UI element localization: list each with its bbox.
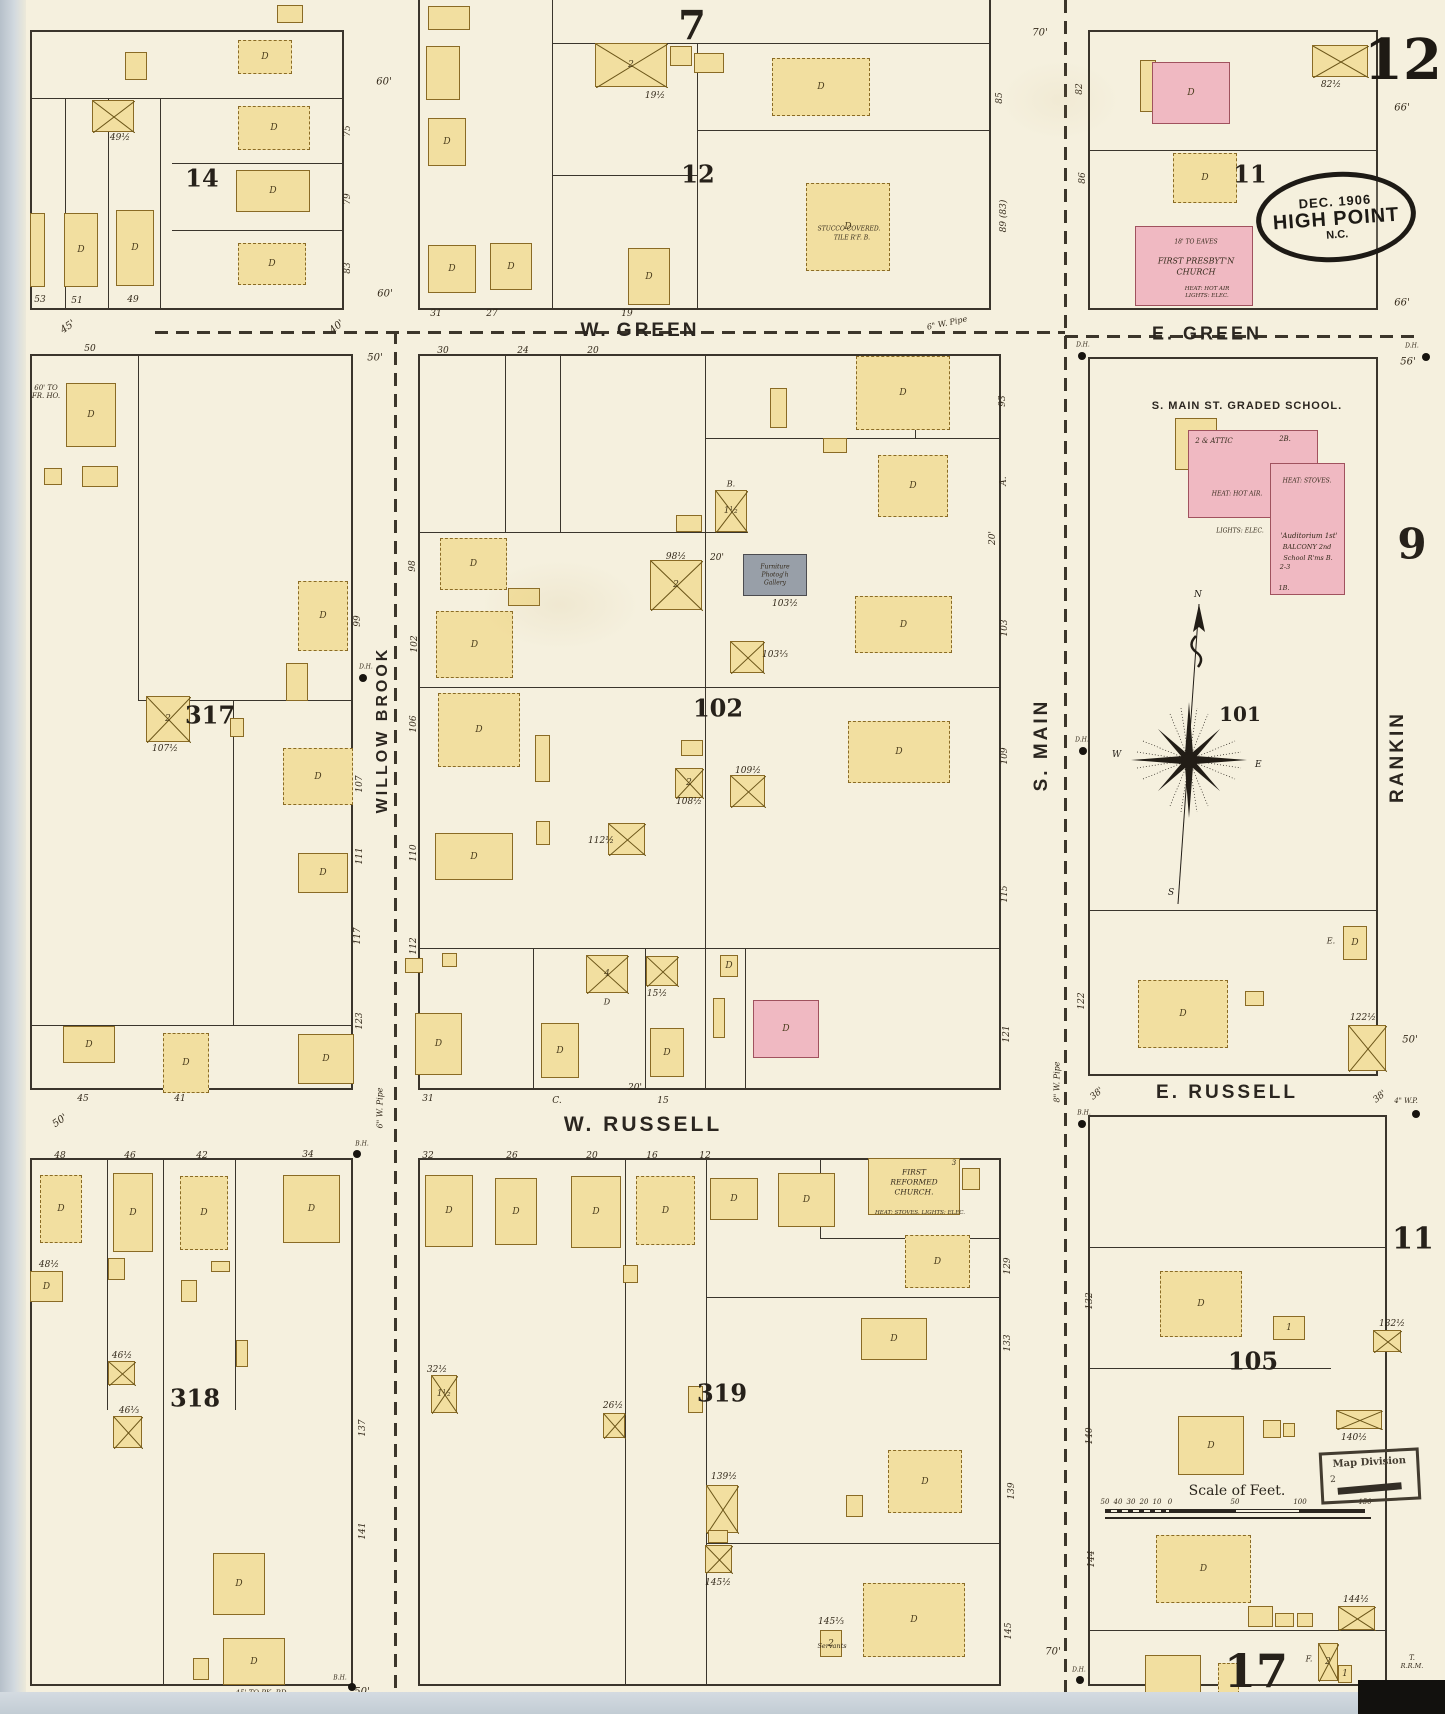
crossed-building-x (109, 1362, 136, 1386)
map-annotation: 20 (587, 346, 598, 356)
map-annotation: 56' (1400, 357, 1415, 368)
map-annotation: S. MAIN ST. GRADED SCHOOL. (1152, 400, 1342, 412)
building (125, 52, 147, 80)
building-label: 2 (1319, 1644, 1337, 1680)
building: D (298, 581, 348, 651)
scale-tick: 100 (1293, 1498, 1306, 1506)
building (730, 775, 765, 807)
building: 2 (146, 696, 190, 742)
building: D (113, 1173, 153, 1252)
map-annotation: 98 (408, 560, 418, 571)
building (1263, 1420, 1281, 1438)
building-label: D (436, 834, 512, 879)
lot-line (160, 98, 161, 309)
lot-line (1088, 357, 1378, 359)
street-label: S. MAIN (1031, 699, 1053, 792)
lot-line (552, 175, 697, 176)
map-annotation: 141 (358, 1522, 368, 1539)
map-annotation: HEAT: HOT AIR. (1212, 491, 1263, 498)
map-annotation: 3 (952, 1159, 956, 1167)
map-annotation: 115 (1000, 885, 1010, 902)
lot-line (233, 700, 234, 1026)
map-annotation: 46½ (112, 1351, 132, 1361)
map-annotation: 117 (353, 927, 363, 944)
map-division-stamp: Map Division 2 (1319, 1447, 1422, 1504)
map-annotation: 45' (59, 318, 78, 336)
map-annotation: 48 (54, 1151, 65, 1161)
building: D (905, 1235, 970, 1288)
map-annotation: 45 (77, 1094, 88, 1104)
lot-line (30, 308, 344, 310)
block-number: 9 (1397, 520, 1426, 569)
lot-line (418, 948, 1000, 949)
block-number: 319 (697, 1379, 747, 1408)
building-label: 1½ (716, 491, 746, 531)
building: D (1156, 1535, 1251, 1603)
map-annotation: 'Auditorium 1st' (1281, 532, 1338, 540)
building: D (116, 210, 154, 286)
scan-edge-left (0, 0, 26, 1714)
building-label: 1½ (432, 1376, 456, 1412)
map-annotation: 66' (1394, 298, 1409, 309)
lot-line (1088, 357, 1090, 1076)
building (713, 998, 725, 1038)
map-annotation: CHURCH. (895, 1188, 934, 1197)
map-annotation: 19 (621, 309, 632, 319)
crossed-building-x (609, 824, 646, 856)
building: D (1178, 1416, 1244, 1475)
map-annotation: 145½ (705, 1578, 731, 1588)
lot-line (999, 354, 1001, 1090)
street-label: E. GREEN (1152, 324, 1262, 345)
map-annotation: HEAT: HOT AIR (1185, 286, 1230, 292)
building (536, 821, 550, 845)
building: D (66, 383, 116, 447)
building-label: D (651, 1029, 683, 1076)
map-annotation: 89 (83) (999, 200, 1009, 233)
building-label: 4 (587, 956, 627, 992)
map-annotation: 8" W. Pipe (1053, 1061, 1062, 1102)
building: 2 (675, 768, 703, 798)
map-annotation: 41 (174, 1094, 185, 1104)
map-annotation: D.H. (1405, 343, 1419, 350)
street-label: E. RUSSELL (1156, 1082, 1298, 1104)
compass-north-label: N (1194, 590, 1202, 600)
lot-line (552, 0, 553, 309)
lot-line (1088, 1115, 1387, 1117)
building-label: D (849, 722, 949, 782)
map-annotation: 110 (409, 844, 419, 861)
map-annotation: 50' (1402, 1035, 1417, 1046)
building: D (753, 1000, 819, 1058)
map-annotation: 103 (1000, 619, 1010, 636)
map-annotation: 139 (1007, 1482, 1017, 1499)
building (770, 388, 787, 428)
building: D (440, 538, 507, 590)
map-annotation: STUCCO COVERED. (818, 226, 881, 233)
building-label: D (237, 171, 309, 211)
map-annotation: 85 (995, 92, 1005, 103)
building-label: D (439, 694, 519, 766)
compass-rose: N W E S (1102, 588, 1277, 918)
building: 1½ (431, 1375, 457, 1413)
map-annotation: 4" W.P. (1394, 1097, 1418, 1105)
map-annotation: 129 (1003, 1257, 1013, 1274)
map-annotation: TILE R'F. B. (834, 235, 870, 242)
map-annotation: D (604, 998, 610, 1007)
lot-line (163, 1158, 164, 1685)
street-dashed-line (394, 331, 397, 1694)
building-label: D (542, 1024, 578, 1077)
building-label: D (164, 1034, 208, 1092)
building (405, 958, 423, 973)
building-label: D (906, 1236, 969, 1287)
building (426, 46, 460, 100)
building-label: 1 (1274, 1317, 1304, 1339)
map-annotation: F. (1306, 1655, 1313, 1664)
building: D (541, 1023, 579, 1078)
building: D (425, 1175, 473, 1247)
map-annotation: 50 (84, 344, 95, 354)
building (535, 735, 550, 782)
block-number: 102 (693, 694, 743, 723)
lot-line (30, 354, 353, 356)
building: D (428, 245, 476, 293)
map-annotation: REFORMED (890, 1178, 937, 1187)
crossed-building-x (1337, 1411, 1383, 1430)
map-annotation: 102 (410, 635, 420, 652)
map-annotation: 27 (486, 309, 497, 319)
map-annotation: 26½ (603, 1401, 623, 1411)
building: D (213, 1553, 265, 1615)
lot-line (706, 1297, 1000, 1298)
compass-east-label: E (1255, 760, 1262, 770)
building (1336, 1410, 1382, 1429)
building: D (30, 1271, 63, 1302)
lot-line (351, 1158, 353, 1686)
building (193, 1658, 209, 1680)
map-annotation: 99 (353, 615, 363, 626)
lot-line (1088, 150, 1376, 151)
map-annotation: B.H. (333, 1675, 346, 1682)
map-annotation: 79 (343, 193, 353, 204)
building (1338, 1606, 1375, 1630)
map-annotation: A. (999, 476, 1009, 485)
street-label: W. GREEN (580, 320, 699, 342)
map-annotation: 6" W. Pipe (376, 1087, 385, 1128)
map-annotation: Gallery (764, 580, 786, 587)
building-label: D (1139, 981, 1227, 1047)
crossed-building-x (1313, 46, 1369, 78)
scale-bar-subdivided-segment (1105, 1509, 1170, 1513)
scale-bar-segment (1300, 1509, 1365, 1513)
hydrant-dot (359, 674, 367, 682)
lot-line (30, 30, 343, 32)
hydrant-dot (1079, 747, 1087, 755)
map-annotation: 112½ (588, 836, 614, 846)
lot-line (172, 230, 342, 231)
street-dashed-line (1064, 0, 1067, 1694)
building (962, 1168, 980, 1190)
map-annotation: B.H. (1077, 1110, 1090, 1117)
map-annotation: 20 (586, 1151, 597, 1161)
building-label: D (239, 41, 291, 73)
building: D (710, 1178, 758, 1220)
building: D (650, 1028, 684, 1077)
building: D (861, 1318, 927, 1360)
lot-line (30, 1158, 32, 1686)
building-label: D (117, 211, 153, 285)
map-annotation: C. (552, 1096, 561, 1106)
map-annotation: 107½ (152, 744, 178, 754)
map-annotation: 83 (343, 262, 353, 273)
map-annotation: 42 (196, 1151, 207, 1161)
lot-line (1088, 1247, 1386, 1248)
building-label: D (864, 1584, 964, 1656)
block-number: 105 (1228, 1347, 1278, 1376)
building-label: D (857, 357, 949, 429)
map-annotation: 98½ (666, 552, 686, 562)
block-number: 14 (185, 164, 218, 193)
map-annotation: 48½ (39, 1260, 59, 1270)
building: 1 (1273, 1316, 1305, 1340)
map-annotation: B.H. (355, 1141, 368, 1148)
building-label: D (879, 456, 947, 516)
map-annotation: 122 (1077, 992, 1087, 1009)
block-number: 11 (1392, 1222, 1434, 1257)
building-label: D (491, 244, 531, 289)
building (108, 1361, 135, 1385)
building (1312, 45, 1368, 77)
building (277, 5, 303, 23)
building-label: D (1179, 1417, 1243, 1474)
map-annotation: 144 (1087, 1550, 1097, 1567)
map-annotation: 60' (376, 77, 391, 88)
building-label: D (1153, 63, 1229, 123)
building (846, 1495, 863, 1517)
building: D (223, 1638, 285, 1685)
building: 2 (595, 43, 667, 87)
building-label: D (114, 1174, 152, 1251)
compass-south-label: S (1168, 888, 1174, 898)
building-label: D (299, 1035, 353, 1083)
building-label: D (572, 1177, 620, 1247)
building: D (180, 1176, 228, 1250)
crossed-building-x (706, 1546, 733, 1574)
hydrant-dot (353, 1150, 361, 1158)
building (1297, 1613, 1313, 1627)
map-annotation: D.H. (1075, 737, 1089, 744)
map-annotation: 2 & ATTIC (1195, 437, 1232, 445)
crossed-building-x (731, 642, 765, 674)
map-annotation: 2-3 (1280, 563, 1290, 571)
map-annotation: T. (1409, 1654, 1415, 1662)
building (706, 1485, 738, 1533)
building: D (856, 356, 950, 430)
building-label: D (889, 1451, 961, 1512)
map-annotation: Furniture (760, 564, 789, 571)
building: D (778, 1173, 835, 1227)
scale-tick: 0 (1168, 1498, 1172, 1506)
building-label: D (181, 1177, 227, 1249)
building (113, 1416, 142, 1448)
building (44, 468, 62, 485)
map-annotation: CHURCH (1177, 268, 1216, 277)
scale-bar-segment (1235, 1509, 1300, 1513)
building (1275, 1613, 1294, 1627)
building: D (298, 1034, 354, 1084)
building: D (855, 596, 952, 653)
map-annotation: 140½ (1341, 1433, 1367, 1443)
map-annotation: LIGHTS: ELEC. (1185, 293, 1229, 299)
building (623, 1265, 638, 1283)
scale-tick: 10 (1153, 1498, 1162, 1506)
map-annotation: 53 (34, 295, 45, 305)
building: D (283, 1175, 340, 1243)
map-annotation: 109½ (735, 766, 761, 776)
compass-west-label: W (1112, 750, 1121, 760)
building-label: D (416, 1014, 461, 1074)
plate-number: 12 (1364, 32, 1442, 88)
map-annotation: 122½ (1350, 1013, 1376, 1023)
map-annotation: 30 (437, 346, 448, 356)
stamp-state: N.C. (1326, 228, 1349, 242)
building-label: D (1344, 927, 1366, 959)
map-annotation: LIGHTS: ELEC. (1216, 528, 1263, 535)
building (236, 1340, 248, 1367)
building-label: D (862, 1319, 926, 1359)
building-label: D (64, 1027, 114, 1062)
building-label: D (437, 612, 512, 677)
map-division-smudge (1337, 1482, 1401, 1495)
lot-line (1088, 308, 1378, 310)
building (681, 740, 703, 756)
map-annotation: 31 (422, 1094, 433, 1104)
building: D (848, 721, 950, 783)
map-annotation: 49 (127, 295, 138, 305)
hydrant-dot (1078, 1120, 1086, 1128)
block-number: 317 (185, 701, 235, 730)
lot-line (30, 98, 342, 99)
building-label: D (299, 582, 347, 650)
map-annotation: 106 (409, 715, 419, 732)
building-label: D (284, 749, 352, 804)
lot-line (351, 354, 353, 1090)
map-annotation: 6" W. Pipe (926, 314, 968, 331)
building-label: D (711, 1179, 757, 1219)
crossed-building-x (1349, 1026, 1387, 1072)
building: D (720, 955, 738, 977)
map-annotation: 32½ (427, 1365, 447, 1375)
building (108, 1258, 125, 1280)
building: D (1138, 980, 1228, 1048)
block-number: 12 (681, 160, 714, 189)
lot-line (1088, 30, 1090, 310)
building (730, 641, 764, 673)
building: D (863, 1583, 965, 1657)
building (286, 663, 308, 701)
map-annotation: 111 (355, 847, 365, 864)
building: D (415, 1013, 462, 1075)
map-annotation: 107 (355, 775, 365, 792)
building-label: D (779, 1174, 834, 1226)
map-annotation: BALCONY 2nd (1283, 543, 1332, 551)
building (508, 588, 540, 606)
building: 2 (1318, 1643, 1338, 1681)
building: D (1343, 926, 1367, 960)
building (442, 953, 457, 967)
building: D (495, 1178, 537, 1245)
map-annotation: 82½ (1321, 80, 1341, 90)
building (646, 956, 678, 986)
map-annotation: 16 (646, 1151, 657, 1161)
street-label: WILLOW BROOK (374, 647, 392, 814)
building: 1½ (715, 490, 747, 532)
map-division-number: 2 (1330, 1475, 1336, 1485)
building (1248, 1606, 1273, 1627)
building (181, 1280, 197, 1302)
building-label: D (214, 1554, 264, 1614)
lot-line (505, 354, 506, 532)
building (30, 213, 45, 287)
building-label: D (429, 119, 465, 165)
building (676, 515, 702, 532)
map-annotation: 46 (124, 1151, 135, 1161)
building-label: 2 (651, 561, 701, 609)
building-label: D (284, 1176, 339, 1242)
lot-line (1088, 1115, 1090, 1685)
map-annotation: 49½ (110, 133, 130, 143)
date-stamp-oval: DEC. 1906 HIGH POINT N.C. (1253, 167, 1419, 268)
crossed-building-x (647, 957, 679, 987)
map-annotation: 144½ (1343, 1595, 1369, 1605)
building: D (571, 1176, 621, 1248)
map-annotation: 26 (506, 1151, 517, 1161)
map-annotation: 60' TO (34, 384, 57, 392)
map-annotation: 34 (302, 1150, 313, 1160)
building: D (63, 1026, 115, 1063)
lot-line (418, 1684, 1001, 1686)
map-annotation: 139½ (711, 1472, 737, 1482)
building-label: D (67, 384, 115, 446)
lot-line (235, 1158, 236, 1410)
building: 2 (650, 560, 702, 610)
building-label: D (31, 1272, 62, 1301)
building (1283, 1423, 1295, 1437)
building-label: 2 (147, 697, 189, 741)
building-label: D (773, 59, 869, 115)
building: D (236, 170, 310, 212)
crossed-building-x (707, 1486, 739, 1534)
map-annotation: 24 (517, 346, 528, 356)
scan-edge-bottom (0, 1692, 1445, 1714)
building (428, 6, 470, 30)
lot-line (697, 130, 989, 131)
crossed-building-x (1339, 1607, 1376, 1631)
building-label: D (429, 246, 475, 292)
map-annotation: 1B. (1279, 584, 1290, 592)
map-annotation: 20' (988, 531, 998, 545)
building-label: D (721, 956, 737, 976)
building: D (636, 1176, 695, 1245)
hydrant-dot (1076, 1676, 1084, 1684)
lot-line (533, 948, 534, 1088)
map-annotation: 20' (628, 1083, 642, 1093)
map-annotation: 145⅓ (818, 1617, 844, 1627)
lot-line (989, 0, 991, 310)
block-number: 7 (678, 3, 706, 50)
building (708, 1530, 728, 1543)
